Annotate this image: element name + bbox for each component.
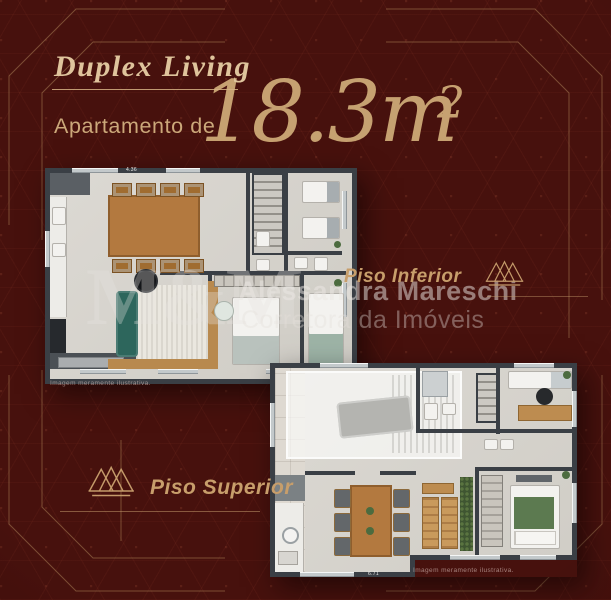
coffee-table bbox=[134, 269, 158, 293]
window bbox=[158, 369, 198, 374]
single-bed bbox=[302, 181, 340, 203]
dining-chair bbox=[393, 537, 410, 556]
window bbox=[270, 403, 275, 447]
bed bbox=[308, 293, 344, 365]
bed-bench bbox=[516, 475, 552, 482]
crown-icon bbox=[84, 458, 142, 504]
window bbox=[520, 555, 556, 560]
cooktop bbox=[50, 319, 66, 353]
vertical-garden bbox=[460, 477, 473, 551]
dimension-label: 4.36 bbox=[126, 168, 137, 173]
plant bbox=[334, 279, 342, 287]
kitchen-sink bbox=[52, 207, 66, 225]
interior-wall bbox=[305, 471, 355, 475]
office-chair bbox=[536, 388, 553, 405]
interior-wall bbox=[300, 275, 304, 369]
dining-chair bbox=[393, 513, 410, 532]
kitchen-sink bbox=[282, 527, 299, 544]
dining-chair bbox=[160, 259, 180, 273]
entry-closet bbox=[50, 173, 90, 195]
wood-deck bbox=[208, 281, 218, 369]
sink bbox=[294, 257, 308, 269]
dining-chair bbox=[184, 259, 204, 273]
toilet bbox=[314, 257, 328, 271]
interior-wall bbox=[380, 471, 416, 475]
title-underline bbox=[52, 89, 238, 90]
page-title: Duplex Living bbox=[54, 50, 251, 84]
crown-icon bbox=[482, 254, 530, 292]
single-bed bbox=[302, 217, 340, 239]
sofa-below bbox=[336, 395, 413, 439]
floor-plan-lower: 4.36 bbox=[45, 168, 357, 384]
wardrobe bbox=[481, 475, 503, 547]
armchair bbox=[214, 301, 234, 321]
sink bbox=[484, 439, 498, 450]
dining-chair bbox=[334, 537, 351, 556]
window bbox=[572, 391, 577, 427]
interior-wall bbox=[416, 368, 420, 433]
side-table bbox=[422, 483, 454, 494]
label-piso-inferior: Piso Inferior bbox=[344, 266, 461, 288]
disclaimer-text: Imagem meramente ilustrativa. bbox=[50, 380, 151, 387]
toilet bbox=[500, 439, 514, 450]
toilet bbox=[256, 259, 270, 271]
interior-wall bbox=[416, 429, 577, 433]
window bbox=[572, 483, 577, 523]
outer-wall bbox=[270, 363, 275, 577]
stairs bbox=[476, 373, 498, 423]
plant bbox=[562, 471, 570, 479]
dining-chair bbox=[160, 183, 180, 197]
shower bbox=[422, 371, 448, 397]
interior-wall bbox=[284, 173, 288, 271]
sofa bbox=[116, 291, 138, 357]
window bbox=[166, 168, 200, 173]
window bbox=[320, 363, 368, 368]
interior-wall bbox=[475, 467, 479, 555]
disclaimer-text: Imagem meramente ilustrativa. bbox=[413, 567, 514, 574]
dining-chair bbox=[334, 489, 351, 508]
lounger bbox=[422, 497, 439, 549]
label-underline bbox=[60, 511, 260, 512]
plant bbox=[334, 241, 341, 248]
kitchen-appliance bbox=[278, 551, 298, 565]
interior-wall bbox=[475, 467, 577, 471]
plant bbox=[563, 371, 571, 379]
table-plant bbox=[366, 527, 374, 535]
dining-chair bbox=[112, 183, 132, 197]
marketing-page: { "header": { "title": "Duplex Living", … bbox=[0, 0, 611, 600]
lounger bbox=[441, 497, 458, 549]
interior-wall bbox=[246, 173, 250, 271]
wood-deck bbox=[108, 359, 218, 369]
window bbox=[342, 191, 347, 229]
dimension-label: 6.71 bbox=[368, 572, 379, 577]
dining-chair bbox=[334, 513, 351, 532]
window bbox=[80, 369, 126, 374]
table-plant bbox=[366, 507, 374, 515]
window bbox=[514, 363, 554, 368]
sink bbox=[442, 403, 456, 415]
toilet bbox=[424, 403, 438, 420]
area-exponent: 2 bbox=[437, 82, 465, 126]
wardrobe bbox=[214, 275, 300, 287]
interior-wall bbox=[288, 251, 342, 255]
bed-pillows bbox=[514, 531, 556, 545]
desk bbox=[518, 405, 572, 421]
label-underline bbox=[487, 296, 588, 297]
bed bbox=[232, 297, 280, 365]
dining-chair bbox=[112, 259, 132, 273]
label-piso-superior: Piso Superior bbox=[150, 476, 293, 500]
dining-table bbox=[350, 485, 392, 557]
page-subtitle: Apartamento de bbox=[54, 114, 215, 139]
dining-table bbox=[108, 195, 200, 257]
dining-chair bbox=[136, 183, 156, 197]
sink bbox=[256, 231, 270, 247]
window bbox=[450, 555, 500, 560]
dining-chair bbox=[393, 489, 410, 508]
rug bbox=[136, 285, 208, 363]
bed-blanket bbox=[514, 497, 554, 529]
floor-plan-upper: 6.71 bbox=[270, 363, 577, 577]
window bbox=[300, 572, 354, 577]
kitchen-fixture bbox=[52, 243, 66, 257]
dining-chair bbox=[184, 183, 204, 197]
